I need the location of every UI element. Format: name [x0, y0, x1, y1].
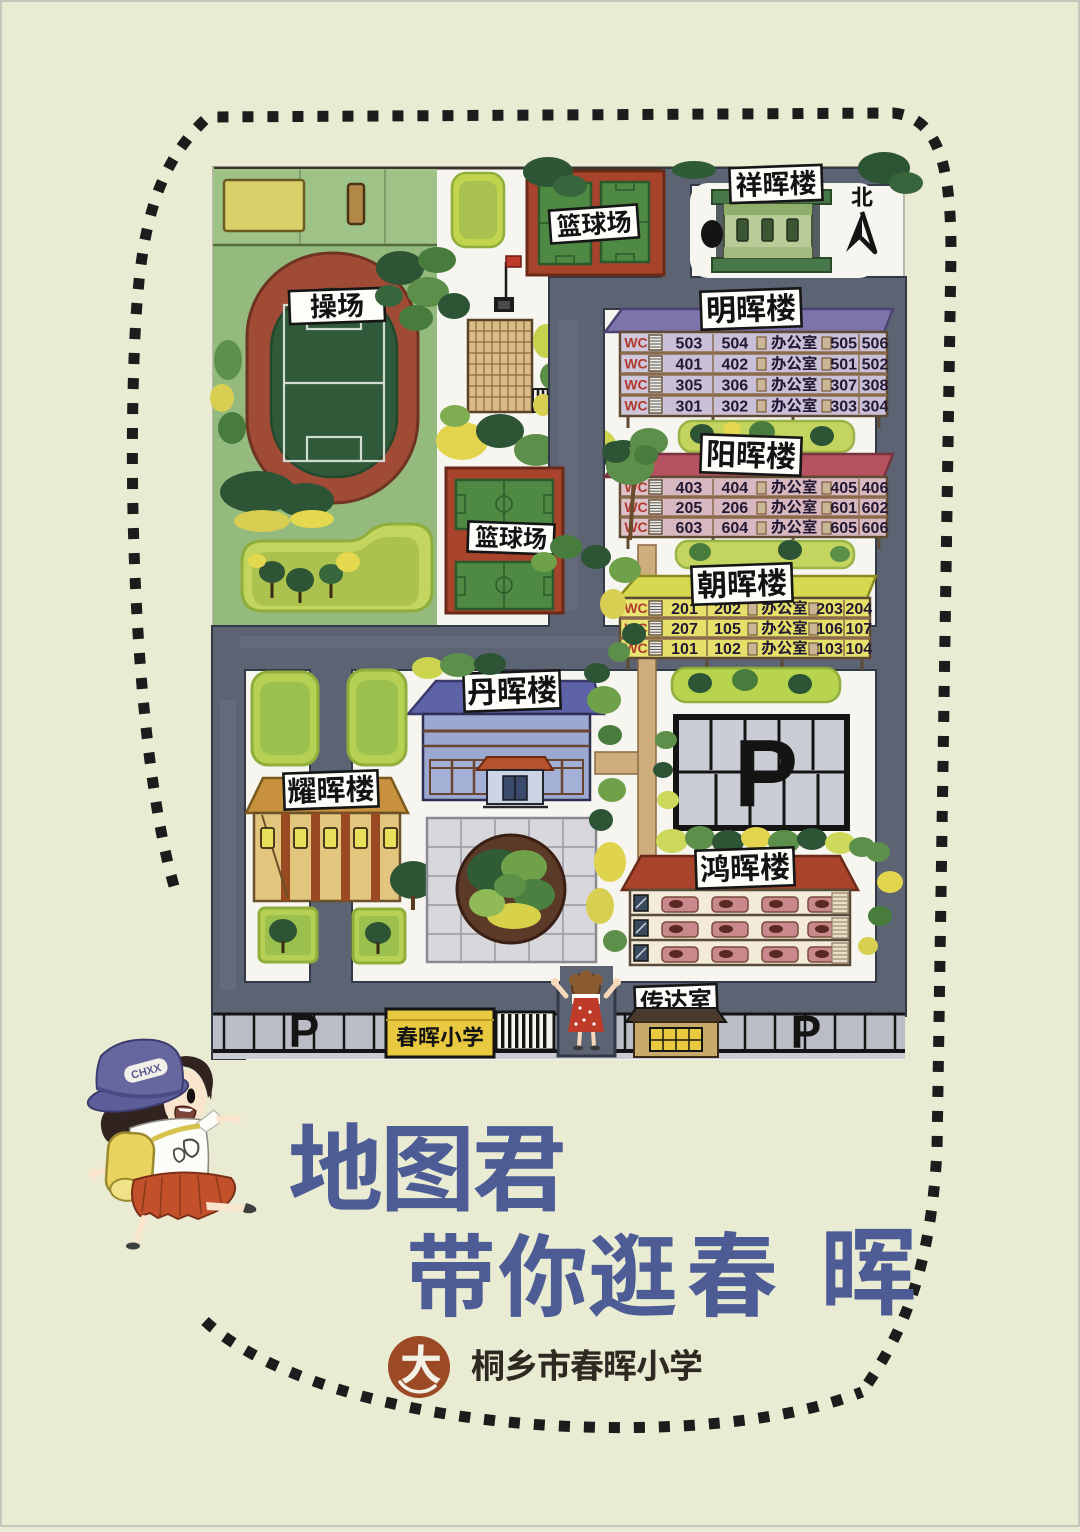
svg-text:204: 204: [845, 601, 872, 618]
svg-text:WC: WC: [624, 335, 647, 351]
svg-text:206: 206: [721, 500, 748, 517]
svg-text:105: 105: [714, 621, 741, 638]
svg-text:203: 203: [816, 601, 843, 618]
svg-text:WC: WC: [624, 377, 647, 393]
svg-text:406: 406: [862, 480, 889, 497]
svg-text:307: 307: [830, 378, 857, 395]
svg-text:WC: WC: [624, 356, 647, 372]
svg-text:503: 503: [676, 336, 703, 353]
svg-text:207: 207: [671, 621, 698, 638]
svg-text:505: 505: [830, 336, 857, 353]
svg-text:306: 306: [721, 378, 748, 395]
svg-text:103: 103: [816, 641, 843, 658]
svg-text:104: 104: [845, 641, 872, 658]
svg-text:603: 603: [676, 520, 703, 537]
svg-text:403: 403: [676, 480, 703, 497]
svg-text:WC: WC: [624, 499, 647, 515]
svg-text:604: 604: [721, 520, 748, 537]
svg-text:502: 502: [862, 357, 889, 374]
svg-text:305: 305: [676, 378, 703, 395]
svg-text:102: 102: [714, 641, 741, 658]
svg-text:P: P: [734, 720, 798, 827]
svg-text:405: 405: [830, 480, 857, 497]
svg-text:506: 506: [862, 336, 889, 353]
svg-text:605: 605: [830, 520, 857, 537]
svg-text:P: P: [289, 1005, 320, 1057]
svg-text:404: 404: [721, 480, 748, 497]
svg-text:P: P: [791, 1006, 822, 1058]
svg-text:WC: WC: [624, 519, 647, 535]
svg-text:303: 303: [830, 399, 857, 416]
svg-text:302: 302: [721, 399, 748, 416]
svg-text:301: 301: [676, 399, 703, 416]
svg-text:304: 304: [862, 399, 889, 416]
svg-text:402: 402: [721, 357, 748, 374]
svg-text:504: 504: [721, 336, 748, 353]
svg-text:308: 308: [862, 378, 889, 395]
svg-text:205: 205: [676, 500, 703, 517]
svg-text:WC: WC: [624, 398, 647, 414]
svg-text:401: 401: [676, 357, 703, 374]
svg-text:501: 501: [830, 357, 857, 374]
svg-text:WC: WC: [624, 600, 647, 616]
svg-text:107: 107: [845, 621, 872, 638]
svg-text:601: 601: [830, 500, 857, 517]
svg-text:101: 101: [671, 641, 698, 658]
svg-text:602: 602: [862, 500, 889, 517]
svg-text:606: 606: [862, 520, 889, 537]
svg-text:106: 106: [816, 621, 843, 638]
